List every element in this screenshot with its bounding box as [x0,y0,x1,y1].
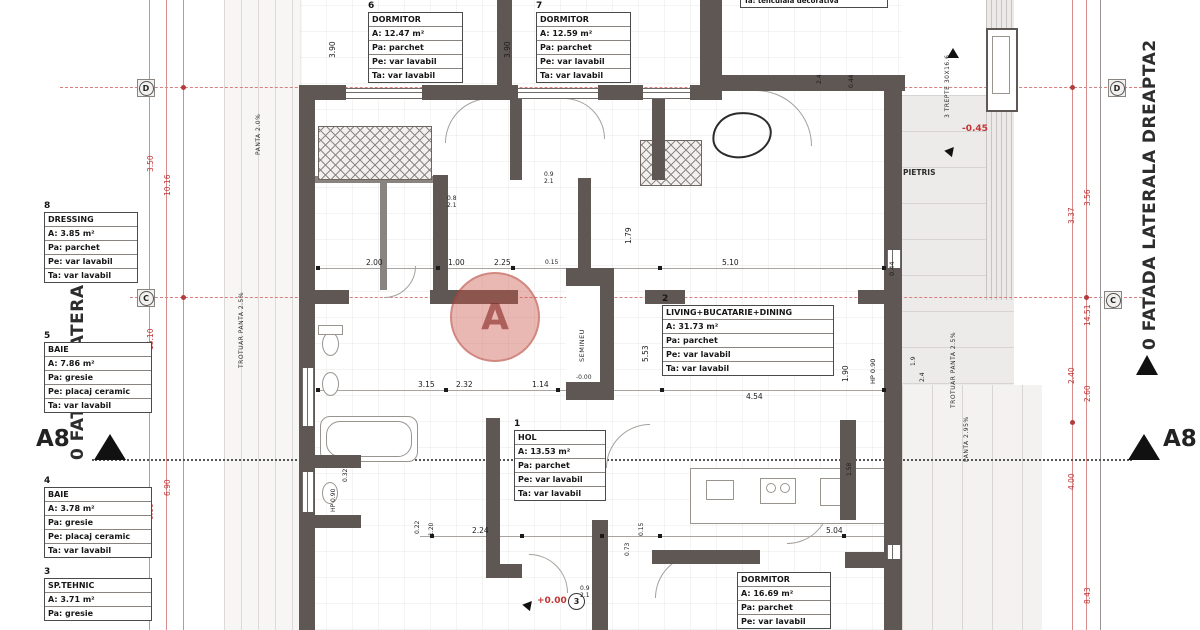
wall [652,95,665,180]
axis-marker-D-left: D [137,79,155,97]
wall [598,85,643,100]
room-ceiling: Ta: var lavabil [515,486,605,500]
room-walls: Pe: var lavabil [45,254,137,268]
room-ceiling: Ta: var lavabil [663,361,833,375]
room-number: 4 [44,476,50,486]
room-walls: Pe: placaj ceramic [45,384,151,398]
stove-burner [766,483,776,493]
room-box-hol-1: 1 HOL A: 13.53 m² Pa: parchet Pe: var la… [514,430,606,501]
room-box-dressing-8: 8 DRESSING A: 3.85 m² Pa: parchet Pe: va… [44,212,138,283]
red-dim: 2.40 [1067,367,1076,384]
room-box-baie-4: 4 BAIE A: 3.78 m² Pa: gresie Pe: placaj … [44,487,152,558]
door-size-tag: 0.9 2.1 [544,172,554,186]
axis-marker-C-left: C [137,289,155,307]
dim-dot [882,388,886,392]
wall [486,418,500,578]
dim-dot [658,266,662,270]
stove-burner [780,483,790,493]
dim-text: 2.32 [456,380,473,389]
axis-line-C [130,297,1142,298]
room-area: A: 13.53 m² [515,444,605,458]
room-area: A: 3.85 m² [45,226,137,240]
room-area: A: 12.59 m² [537,26,630,40]
room-box-dormitor-bottom: DORMITOR A: 16.69 m² Pa: parchet Pe: var… [737,572,831,629]
dim-text: 1.00 [448,258,465,267]
room-area: A: 3.71 m² [45,592,151,606]
room-floor: Pa: parchet [738,600,830,614]
room-area: A: 31.73 m² [663,319,833,333]
red-dim: 4.00 [1067,473,1076,490]
wall [700,0,722,100]
dim-dot [444,388,448,392]
wall [652,550,760,564]
room-floor: Pa: parchet [45,240,137,254]
window [518,88,598,99]
wall [299,455,361,468]
room-floor: Pa: parchet [369,40,462,54]
steps-note: 3 TREPTE 30X16.6 [944,55,951,118]
room-floor: Pa: parchet [537,40,630,54]
dim-dot [658,534,662,538]
dim-dot [660,388,664,392]
room-name: DORMITOR [738,573,830,586]
kitchen-sink [706,480,734,500]
facade-arrow-right [1136,355,1158,375]
room-floor: Pa: parchet [515,458,605,472]
dim-dot [520,534,524,538]
room-name: DORMITOR [369,13,462,26]
axis-letter: D [1110,81,1125,96]
room-number: 5 [44,331,50,341]
red-dim: 3.56 [1083,189,1092,206]
wardrobe-hatch [640,140,702,186]
wall [858,290,902,304]
bathtub-inner [326,421,412,457]
dim-dot [436,266,440,270]
finish-note-text: Ta: tencuiala decorativa [741,0,887,7]
section-arrow-right [1128,434,1160,460]
dim-text: 0.32 [342,469,349,482]
wall [486,564,522,578]
axis-dot [181,85,186,90]
watermark: A [450,272,540,362]
room-name: DORMITOR [537,13,630,26]
room-walls: Pe: var lavabil [663,347,833,361]
dim-text: HP 0.90 [330,489,337,512]
dim-text: 0.15 [545,259,558,266]
axis-dot [1070,85,1075,90]
red-dim: 6.90 [163,479,172,496]
red-dim: 8.43 [1083,587,1092,604]
axis-letter: D [139,81,154,96]
window [302,368,314,426]
panta-left-note: PANTA 2.0% [255,114,262,155]
room-number: 7 [536,1,542,11]
room-ceiling: Ta: var lavabil [369,68,462,82]
window [302,472,314,512]
room-box-baie-5: 5 BAIE A: 7.86 m² Pa: gresie Pe: placaj … [44,342,152,413]
door-size-tag: 0.9 2.1 [580,586,590,600]
wardrobe-hatch [318,126,432,180]
axis-dot [1084,295,1089,300]
sink [322,372,339,396]
red-dim: 10.16 [163,175,172,196]
pillar-detail-inner [992,36,1010,94]
dim-dot [316,266,320,270]
room-box-dormitor-6: 6 DORMITOR A: 12.47 m² Pa: parchet Pe: v… [368,12,463,83]
room-floor: Pa: gresie [45,515,151,529]
room-walls: Pe: var lavabil [369,54,462,68]
room-box-living-2: 2 LIVING+BUCATARIE+DINING A: 31.73 m² Pa… [662,305,834,376]
wall [299,515,361,528]
room-name: BAIE [45,488,151,501]
room-name: DRESSING [45,213,137,226]
door-height: 2.1 [544,178,554,185]
toilet [322,332,339,356]
red-dim: 2.60 [1083,385,1092,402]
door-height: 2.1 [447,202,457,209]
dim-text: 1.20 [428,523,435,536]
dim-text: 3.90 [328,41,337,58]
axis-marker-D-right: D [1108,79,1126,97]
axis-marker-C-right: C [1104,291,1122,309]
red-dim-line-left-2 [166,0,167,630]
dim-text: 2.24 [472,526,489,535]
panta-right-note: PANTA 2.95% [963,416,970,462]
room-area: A: 16.69 m² [738,586,830,600]
wall-exterior-left [299,85,315,630]
wall [510,95,522,180]
elevation-ref-line-right [1100,0,1101,630]
dim-dot [316,388,320,392]
axis-dot [1070,420,1075,425]
door-height: 2.1 [580,592,590,599]
dim-text: 2.25 [494,258,511,267]
dim-dot [600,534,604,538]
red-dim-line-left-3 [183,0,184,630]
dim-text: 1.14 [532,380,549,389]
room-number: 2 [662,294,668,304]
level-minus-045: -0.45 [962,124,988,134]
room-ceiling: Ta: var lavabil [537,68,630,82]
room-area: A: 7.86 m² [45,356,151,370]
red-dim: 3.50 [146,155,155,172]
room-floor: Pa: gresie [45,606,151,620]
dim-text: 0.15 [638,523,645,536]
wall [433,175,448,304]
room-box-sptehnic-3: 3 SP.TEHNIC A: 3.71 m² Pa: gresie [44,578,152,621]
partition [380,183,387,290]
room-box-dormitor-7: 7 DORMITOR A: 12.59 m² Pa: parchet Pe: v… [536,12,631,83]
kitchen-stove [760,478,796,504]
dim-text: 5.04 [826,526,843,535]
wall [722,75,905,91]
dim-text: 1.90 [841,365,850,382]
dim-dot [882,266,886,270]
window [887,545,901,559]
door-size-tag: 0.8 2.1 [447,196,457,210]
dim-text: 2.4 [919,372,926,382]
room-ceiling: Ta: var lavabil [45,543,151,557]
room-floor: Pa: gresie [45,370,151,384]
dim-text: 1.79 [624,227,633,244]
wall [299,290,349,304]
finish-note-box: Ta: tencuiala decorativa [740,0,888,8]
trotuar-left-note: TROTUAR PANTA 2.5% [238,292,245,368]
axis-letter: C [139,291,154,306]
steps-arrow [947,48,959,58]
fireplace-label: SEMINEU [578,329,586,362]
red-dim-line-right-1 [1072,0,1073,630]
red-dim: 3.37 [1067,207,1076,224]
room-walls: Pe: var lavabil [738,614,830,628]
floor-plan-canvas: A8 A8 D D C C 0 FATADA LATERALA 0 FATADA… [0,0,1200,630]
red-dim: 14.51 [1083,305,1092,326]
room-walls: Pe: var lavabil [537,54,630,68]
dim-text: HP 0.90 [869,359,877,384]
axis-letter: C [1106,293,1121,308]
dim-text: 0.44 [888,262,896,276]
driveway-paving [224,0,302,630]
dim-text: 2.4 [816,74,823,84]
room-ceiling: Ta: var lavabil [45,398,151,412]
dim-text: 1.58 [846,463,853,476]
room-name: BAIE [45,343,151,356]
room-name: LIVING+BUCATARIE+DINING [663,306,833,319]
dim-text: 1.9 [910,356,917,366]
section-label-right: A8 [1163,426,1197,452]
ground-bottom-right [902,385,1042,630]
level-zero: +0.00 [537,596,567,606]
section-label-left: A8 [36,426,70,452]
room-name: HOL [515,431,605,444]
room-ceiling: Ta: var lavabil [45,268,137,282]
dim-text: 5.10 [722,258,739,267]
room-number: 3 [44,567,50,577]
room-number: 8 [44,201,50,211]
room-floor: Pa: parchet [663,333,833,347]
section-arrow-left [94,434,126,460]
toilet-tank [318,325,343,335]
window [346,88,422,99]
fireplace-level: -0.00 [576,374,592,381]
watermark-letter: A [481,297,509,338]
dim-dot [556,388,560,392]
room-walls: Pe: var lavabil [515,472,605,486]
axis-dot [181,295,186,300]
dim-text: 2.00 [366,258,383,267]
dim-text: 3.90 [503,41,512,58]
room-number: 1 [514,419,520,429]
dim-text: 0.44 [848,75,855,88]
pietris-label: PIETRIS [903,168,936,177]
room-area: A: 3.78 m² [45,501,151,515]
room-number: 6 [368,1,374,11]
dim-dot [511,266,515,270]
room-area: A: 12.47 m² [369,26,462,40]
room-walls: Pe: placaj ceramic [45,529,151,543]
trotuar-right-note: TROTUAR PANTA 2.5% [950,332,957,408]
dim-text: 4.54 [746,392,763,401]
room-name: SP.TEHNIC [45,579,151,592]
dim-text: 3.15 [418,380,435,389]
dim-text: 0.22 [414,521,421,534]
window [643,88,690,99]
facade-label-right: 0 FATADA LATERALA DREAPTA2 [1140,39,1160,350]
dim-text: 0.73 [624,543,631,556]
dim-text: 5.53 [641,345,650,362]
